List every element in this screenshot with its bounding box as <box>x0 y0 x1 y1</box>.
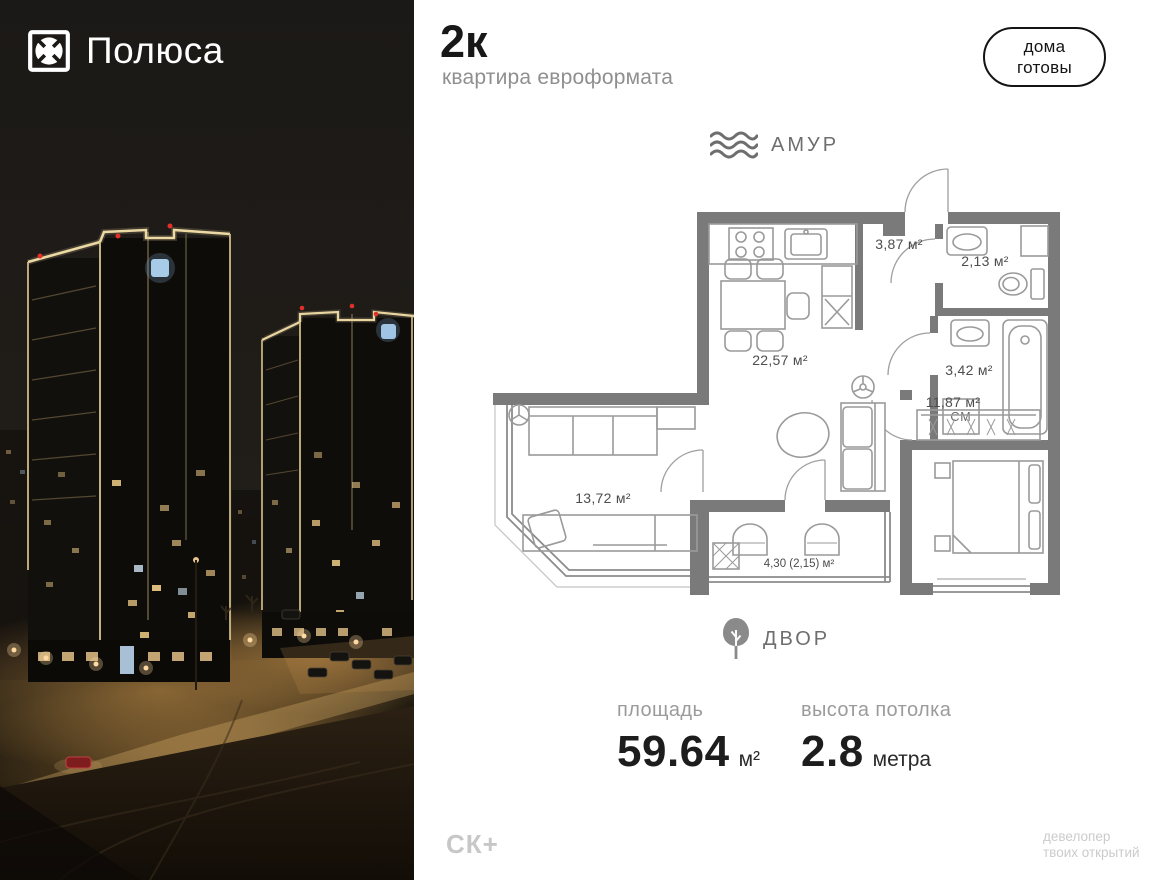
apartment-card: Полюса 2к квартира евроформата дома гото… <box>0 0 1173 880</box>
room-balcony: 4,30 (2,15) м² <box>713 524 839 570</box>
area-value: 59.64 <box>617 727 730 777</box>
developer-tagline-line2: твоих открытий <box>1043 845 1140 861</box>
room-bathroom2: СМ 3,42 м² <box>943 320 1047 434</box>
tower-right <box>262 304 414 658</box>
area-label: площадь <box>617 699 760 722</box>
ready-badge: дома готовы <box>983 27 1106 87</box>
ceiling-height-stat: высота потолка 2.8 метра <box>801 699 951 777</box>
room-living: 13,72 м² <box>509 405 697 551</box>
entrance-light <box>120 646 134 674</box>
ceiling-unit: метра <box>873 748 931 772</box>
room-area-label-kitchen: 22,57 м² <box>752 352 808 368</box>
apartment-type-title: 2к <box>440 16 488 68</box>
tower-left <box>28 224 230 683</box>
polyusa-logo-icon <box>26 28 72 74</box>
tree-icon <box>722 617 750 661</box>
red-car <box>66 757 91 768</box>
ready-badge-line2: готовы <box>1017 57 1072 78</box>
tower-logo-sign <box>151 259 169 277</box>
floor-plan: 22,57 м² 3,87 м² 2,13 м² СМ 3,42 м² <box>485 163 1065 600</box>
room-area-label-living: 13,72 м² <box>575 490 631 506</box>
ceiling-label: высота потолка <box>801 699 951 722</box>
yard-label: ДВОР <box>763 628 830 651</box>
night-scene <box>0 0 414 880</box>
room-area-label-bedroom: 11,87 м² <box>926 394 981 410</box>
developer-logo: СК+ <box>446 829 499 860</box>
total-area-stat: площадь 59.64 м² <box>617 699 760 777</box>
room-area-label-balcony: 4,30 (2,15) м² <box>764 558 835 570</box>
ready-badge-line1: дома <box>1024 36 1066 57</box>
apartment-subtitle: квартира евроформата <box>442 66 673 90</box>
brand-name: Полюса <box>86 30 224 72</box>
waves-icon <box>710 131 758 159</box>
developer-tagline-line1: девелопер <box>1043 829 1140 845</box>
room-area-label-bathroom2: 3,42 м² <box>945 362 993 378</box>
brand-logo: Полюса <box>26 28 224 74</box>
river-direction: АМУР <box>710 131 839 159</box>
room-bathroom: 2,13 м² <box>947 226 1048 299</box>
river-label: АМУР <box>771 134 839 157</box>
yard-direction: ДВОР <box>722 617 830 661</box>
room-area-label-hall: 3,87 м² <box>875 236 923 252</box>
developer-tagline: девелопер твоих открытий <box>1043 829 1140 861</box>
area-unit: м² <box>739 748 760 772</box>
room-area-label-bathroom: 2,13 м² <box>961 253 1009 269</box>
ceiling-value: 2.8 <box>801 727 864 777</box>
building-night-photo: Полюса <box>0 0 414 880</box>
